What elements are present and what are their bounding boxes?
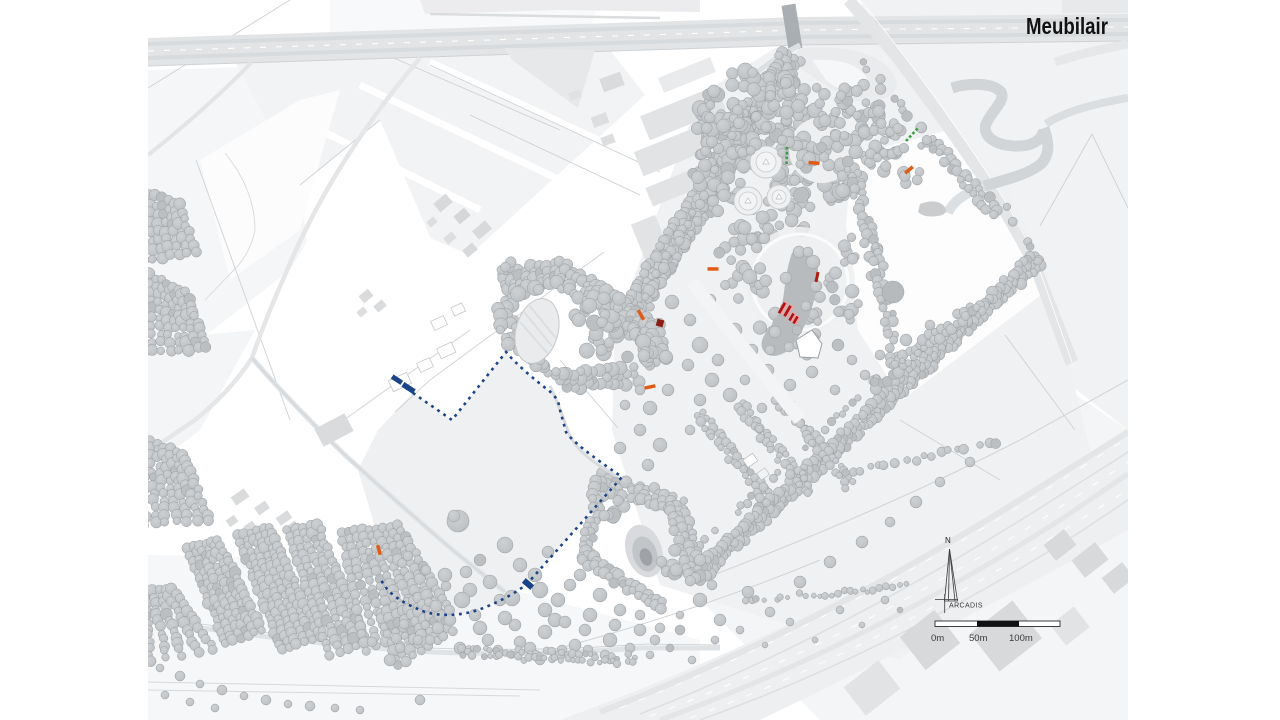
svg-text:100m: 100m (1009, 633, 1033, 644)
svg-text:N: N (945, 536, 951, 545)
svg-text:ARCADIS: ARCADIS (949, 603, 983, 610)
svg-text:50m: 50m (969, 633, 988, 644)
svg-text:Meubilair: Meubilair (1026, 13, 1108, 39)
svg-text:0m: 0m (931, 633, 944, 644)
